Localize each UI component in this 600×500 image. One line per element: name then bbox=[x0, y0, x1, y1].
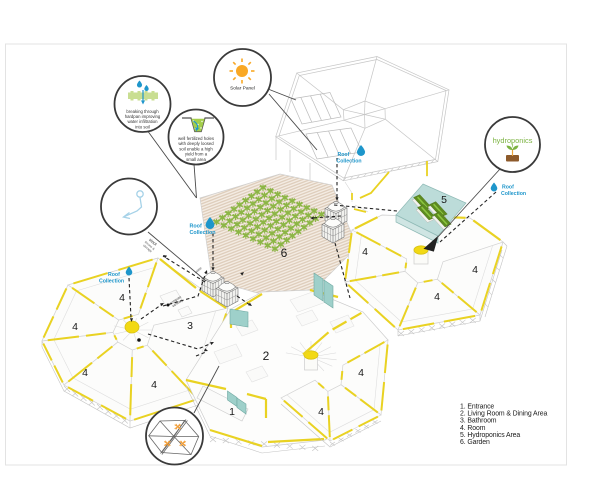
svg-text:6: 6 bbox=[281, 246, 288, 260]
svg-text:3. Bathroom: 3. Bathroom bbox=[460, 418, 497, 425]
svg-text:Collection: Collection bbox=[190, 230, 216, 236]
svg-text:Collection: Collection bbox=[99, 279, 124, 285]
svg-text:small area: small area bbox=[186, 157, 206, 162]
svg-text:4: 4 bbox=[434, 291, 440, 303]
svg-text:Roof: Roof bbox=[502, 185, 514, 191]
svg-text:4: 4 bbox=[151, 379, 157, 391]
svg-text:into soil: into soil bbox=[135, 124, 150, 129]
svg-text:5: 5 bbox=[441, 194, 447, 206]
svg-text:4: 4 bbox=[72, 321, 78, 333]
svg-text:5. Hydroponics Area: 5. Hydroponics Area bbox=[460, 432, 520, 439]
svg-text:4: 4 bbox=[119, 292, 125, 304]
svg-text:4: 4 bbox=[318, 406, 324, 418]
svg-text:4: 4 bbox=[362, 246, 368, 258]
svg-text:1: 1 bbox=[229, 406, 235, 418]
svg-text:Roof: Roof bbox=[108, 272, 120, 278]
svg-text:3: 3 bbox=[187, 320, 193, 332]
svg-text:Roof: Roof bbox=[190, 224, 202, 230]
svg-text:4: 4 bbox=[82, 367, 88, 379]
svg-text:Solar Panel: Solar Panel bbox=[230, 86, 255, 92]
svg-text:6. Garden: 6. Garden bbox=[460, 439, 490, 446]
svg-text:4: 4 bbox=[358, 367, 364, 379]
svg-text:Collection: Collection bbox=[501, 191, 526, 197]
svg-text:1. Entrance: 1. Entrance bbox=[460, 404, 494, 411]
svg-text:2. Living Room & Dining Area: 2. Living Room & Dining Area bbox=[460, 411, 547, 418]
svg-text:Roof: Roof bbox=[338, 152, 350, 158]
svg-text:Collection: Collection bbox=[337, 159, 362, 165]
svg-text:4. Room: 4. Room bbox=[460, 425, 486, 432]
svg-text:4: 4 bbox=[472, 264, 478, 276]
svg-text:2: 2 bbox=[263, 349, 270, 363]
